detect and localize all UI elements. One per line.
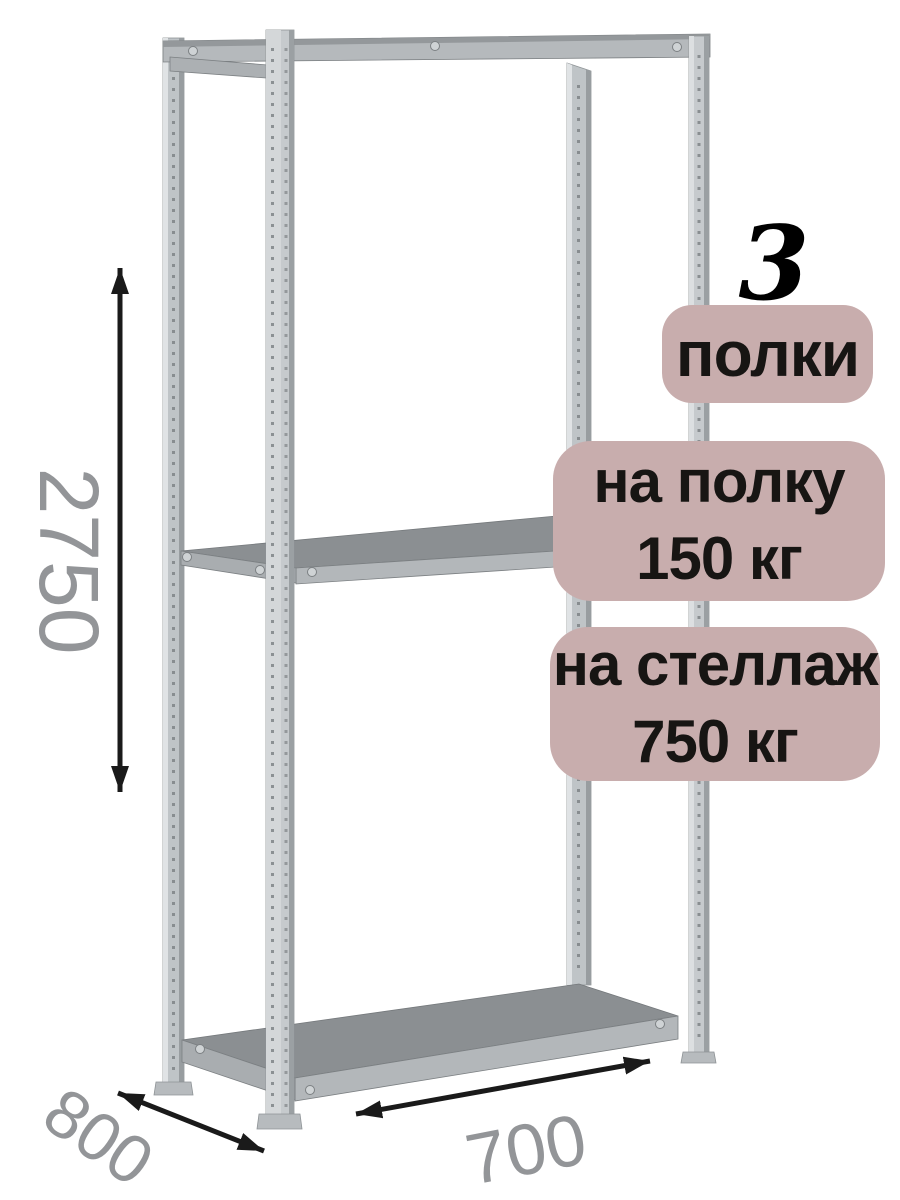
- bolt: [431, 42, 440, 51]
- bolt: [656, 1020, 665, 1029]
- foot-back-left: [154, 1082, 193, 1095]
- bolt: [673, 43, 682, 52]
- bolt: [256, 566, 265, 575]
- per-rack-load-line2: 750 кг: [632, 704, 798, 781]
- shelf-count-badge-label: полки: [676, 317, 859, 391]
- shelf-top: [163, 34, 710, 79]
- bolt: [196, 1045, 205, 1054]
- product-image: 2750 800 700 3 полки на полку 150 кг на …: [0, 0, 900, 1200]
- shelf-bottom: [182, 984, 678, 1101]
- height-dimension-label: 2750: [21, 431, 111, 691]
- bolt: [308, 568, 317, 577]
- bolt: [306, 1086, 315, 1095]
- shelf-count-number: 3: [698, 214, 850, 314]
- foot-front-left: [257, 1114, 302, 1129]
- foot-front-right: [681, 1052, 716, 1063]
- per-rack-load-line1: на стеллаж: [553, 627, 878, 704]
- shelf-count-badge: полки: [662, 305, 873, 403]
- per-rack-load-badge: на стеллаж 750 кг: [550, 627, 880, 781]
- per-shelf-load-badge: на полку 150 кг: [553, 441, 885, 601]
- post-back-left: [154, 38, 193, 1095]
- per-shelf-load-line1: на полку: [593, 444, 844, 521]
- bolt: [189, 47, 198, 56]
- per-shelf-load-line2: 150 кг: [636, 521, 802, 598]
- bolt: [183, 553, 192, 562]
